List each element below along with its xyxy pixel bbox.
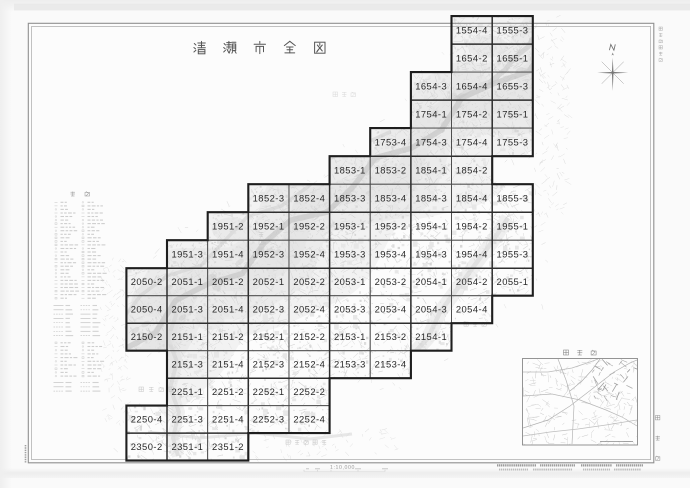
svg-text:1655-3: 1655-3 xyxy=(497,80,529,91)
svg-text:2351-2: 2351-2 xyxy=(212,441,244,452)
svg-text:2053-2: 2053-2 xyxy=(375,276,407,287)
svg-text:2252-3: 2252-3 xyxy=(253,414,285,425)
svg-text:1555-3: 1555-3 xyxy=(497,24,529,35)
svg-text:2051-2: 2051-2 xyxy=(212,276,244,287)
svg-text:1953-1: 1953-1 xyxy=(334,221,366,232)
svg-text:2150-2: 2150-2 xyxy=(131,331,163,342)
svg-text:1854-2: 1854-2 xyxy=(456,165,488,176)
svg-text:2251-2: 2251-2 xyxy=(212,386,244,397)
svg-text:1951-3: 1951-3 xyxy=(171,249,203,260)
svg-text:2053-3: 2053-3 xyxy=(334,304,366,315)
svg-text:1654-3: 1654-3 xyxy=(415,80,447,91)
svg-text:1853-2: 1853-2 xyxy=(375,165,407,176)
svg-text:1754-1: 1754-1 xyxy=(415,108,447,119)
svg-text:1754-2: 1754-2 xyxy=(456,108,488,119)
svg-text:2053-1: 2053-1 xyxy=(334,276,366,287)
svg-text:1853-4: 1853-4 xyxy=(375,193,407,204)
svg-text:2054-1: 2054-1 xyxy=(415,276,447,287)
svg-text:2153-1: 2153-1 xyxy=(334,331,366,342)
svg-text:1954-2: 1954-2 xyxy=(456,221,488,232)
svg-text:1754-3: 1754-3 xyxy=(415,136,447,147)
svg-text:2055-1: 2055-1 xyxy=(497,276,529,287)
svg-text:1852-4: 1852-4 xyxy=(293,193,325,204)
svg-text:2152-1: 2152-1 xyxy=(253,331,285,342)
svg-text:2051-3: 2051-3 xyxy=(171,304,203,315)
svg-text:2052-4: 2052-4 xyxy=(293,304,325,315)
svg-text:2051-4: 2051-4 xyxy=(212,304,244,315)
svg-text:2053-4: 2053-4 xyxy=(375,304,407,315)
svg-text:1951-2: 1951-2 xyxy=(212,221,244,232)
svg-text:2251-4: 2251-4 xyxy=(212,414,244,425)
svg-text:1953-2: 1953-2 xyxy=(375,221,407,232)
svg-text:1755-3: 1755-3 xyxy=(497,136,529,147)
svg-text:2152-3: 2152-3 xyxy=(253,359,285,370)
svg-text:1755-1: 1755-1 xyxy=(497,108,529,119)
svg-text:1955-1: 1955-1 xyxy=(497,221,529,232)
svg-text:1954-4: 1954-4 xyxy=(456,249,488,260)
svg-text:1955-3: 1955-3 xyxy=(497,249,529,260)
svg-text:1654-4: 1654-4 xyxy=(456,80,488,91)
svg-text:2054-4: 2054-4 xyxy=(456,304,488,315)
svg-text:2151-1: 2151-1 xyxy=(171,331,203,342)
svg-text:1754-4: 1754-4 xyxy=(456,136,488,147)
svg-text:2251-1: 2251-1 xyxy=(171,386,203,397)
svg-text:1953-3: 1953-3 xyxy=(334,249,366,260)
svg-text:2151-4: 2151-4 xyxy=(212,359,244,370)
svg-text:1953-4: 1953-4 xyxy=(375,249,407,260)
svg-text:1952-4: 1952-4 xyxy=(293,249,325,260)
svg-text:1952-3: 1952-3 xyxy=(253,249,285,260)
svg-text:2351-1: 2351-1 xyxy=(171,441,203,452)
svg-text:2050-4: 2050-4 xyxy=(131,304,163,315)
svg-text:2350-2: 2350-2 xyxy=(131,441,163,452)
svg-text:2054-3: 2054-3 xyxy=(415,304,447,315)
svg-text:2250-4: 2250-4 xyxy=(131,414,163,425)
svg-text:1954-3: 1954-3 xyxy=(415,249,447,260)
svg-text:2152-2: 2152-2 xyxy=(293,331,325,342)
svg-text:2252-1: 2252-1 xyxy=(253,386,285,397)
svg-text:2054-2: 2054-2 xyxy=(456,276,488,287)
svg-text:1952-2: 1952-2 xyxy=(293,221,325,232)
svg-text:1952-1: 1952-1 xyxy=(253,221,285,232)
svg-text:1951-4: 1951-4 xyxy=(212,249,244,260)
svg-text:2153-3: 2153-3 xyxy=(334,359,366,370)
svg-text:2052-2: 2052-2 xyxy=(293,276,325,287)
svg-text:1852-3: 1852-3 xyxy=(253,193,285,204)
svg-text:1854-4: 1854-4 xyxy=(456,193,488,204)
svg-text:2151-2: 2151-2 xyxy=(212,331,244,342)
svg-text:2251-3: 2251-3 xyxy=(171,414,203,425)
svg-text:1854-1: 1854-1 xyxy=(415,165,447,176)
svg-text:2252-2: 2252-2 xyxy=(293,386,325,397)
svg-text:1654-2: 1654-2 xyxy=(456,52,488,63)
svg-text:2052-3: 2052-3 xyxy=(253,304,285,315)
svg-text:2151-3: 2151-3 xyxy=(171,359,203,370)
svg-text:2252-4: 2252-4 xyxy=(293,414,325,425)
svg-text:1853-3: 1853-3 xyxy=(334,193,366,204)
svg-text:1655-1: 1655-1 xyxy=(497,52,529,63)
svg-text:2051-1: 2051-1 xyxy=(171,276,203,287)
svg-text:2154-1: 2154-1 xyxy=(415,331,447,342)
svg-text:2052-1: 2052-1 xyxy=(253,276,285,287)
svg-text:2152-4: 2152-4 xyxy=(293,359,325,370)
svg-text:1855-3: 1855-3 xyxy=(497,193,529,204)
svg-text:2050-2: 2050-2 xyxy=(131,276,163,287)
svg-text:1753-4: 1753-4 xyxy=(375,136,407,147)
svg-text:1954-1: 1954-1 xyxy=(415,221,447,232)
svg-text:2153-4: 2153-4 xyxy=(375,359,407,370)
svg-text:1853-1: 1853-1 xyxy=(334,165,366,176)
svg-text:1854-3: 1854-3 xyxy=(415,193,447,204)
svg-text:2153-2: 2153-2 xyxy=(375,331,407,342)
svg-text:1554-4: 1554-4 xyxy=(456,24,488,35)
